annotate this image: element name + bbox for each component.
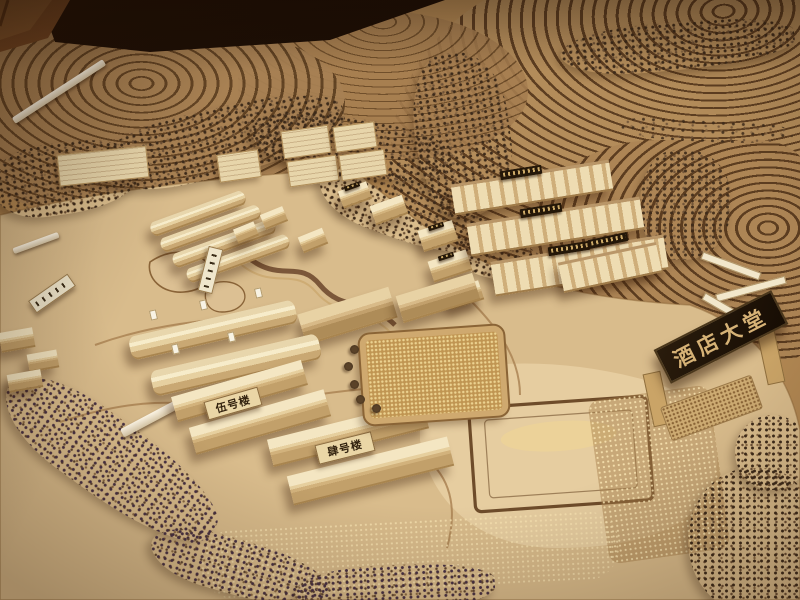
model-photo: 伍号楼 肆号楼 酒店大堂 (0, 0, 800, 600)
shrub (344, 362, 353, 371)
greenhouse-pad (216, 149, 261, 183)
shrub (350, 380, 359, 389)
shrub (356, 395, 365, 404)
model-field-pond (359, 325, 509, 425)
shrub (372, 404, 381, 413)
shrub (350, 345, 359, 354)
tree-cluster-right-edge (735, 415, 800, 490)
